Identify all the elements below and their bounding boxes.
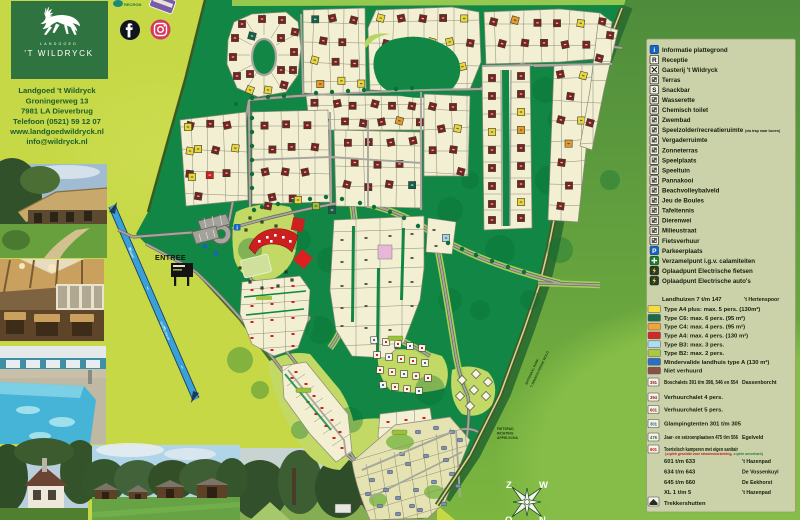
svg-text:Vergaderruimte: Vergaderruimte (662, 137, 708, 144)
svg-text:Type B2: max. 2 pers.: Type B2: max. 2 pers. (664, 351, 724, 357)
svg-text:Niet verhuurd: Niet verhuurd (664, 369, 703, 375)
svg-text:Snackbar: Snackbar (662, 87, 690, 94)
svg-text:Landhuizen 7 t/m 147: Landhuizen 7 t/m 147 (662, 297, 722, 303)
svg-text:Landgoed 't Wildryck: Landgoed 't Wildryck (18, 86, 96, 95)
svg-text:Telefoon (0521) 59 12 07: Telefoon (0521) 59 12 07 (13, 117, 101, 126)
svg-text:Wasserette: Wasserette (662, 97, 695, 104)
svg-text:'t Hazenpad: 't Hazenpad (742, 490, 771, 496)
svg-text:Type C6: max. 6 pers. (95 m²): Type C6: max. 6 pers. (95 m²) (664, 315, 745, 322)
svg-text:Informatie plattegrond: Informatie plattegrond (662, 47, 728, 54)
svg-text:Dierenwei: Dierenwei (662, 218, 692, 225)
svg-text:Beachvolleybalveld: Beachvolleybalveld (662, 188, 720, 195)
svg-text:Chemisch toilet: Chemisch toilet (662, 107, 708, 114)
svg-text:Verhuurchalet 5 pers.: Verhuurchalet 5 pers. (664, 408, 723, 414)
svg-text:W: W (539, 480, 548, 491)
svg-text:O: O (505, 515, 512, 520)
svg-text:De Vossenkuyl: De Vossenkuyl (742, 470, 779, 476)
svg-text:RICHTING: RICHTING (497, 432, 514, 436)
svg-text:7981 LA Dieverbrug: 7981 LA Dieverbrug (21, 107, 93, 116)
svg-text:Milieustraat: Milieustraat (662, 228, 696, 235)
svg-text:De Eekhorst: De Eekhorst (742, 480, 773, 486)
svg-text:'t Hertenspoor: 't Hertenspoor (744, 297, 779, 303)
svg-text:P: P (652, 248, 657, 255)
svg-text:Speeltuin: Speeltuin (662, 167, 690, 174)
svg-text:634 t/m 643: 634 t/m 643 (664, 470, 696, 476)
svg-text:FIETSPAD: FIETSPAD (497, 427, 514, 431)
svg-text:Pannakooi: Pannakooi (662, 177, 694, 184)
svg-text:Speelplaats: Speelplaats (662, 157, 697, 164)
svg-text:601: 601 (650, 447, 658, 452)
svg-text:Tafeltennis: Tafeltennis (662, 208, 695, 215)
svg-text:391: 391 (650, 380, 658, 385)
svg-text:i: i (653, 47, 655, 54)
svg-text:Verzamelpunt i.g.v. calamiteit: Verzamelpunt i.g.v. calamiteiten (662, 258, 755, 265)
svg-text:Jaar- en seizoenplaatsen 475 t: Jaar- en seizoenplaatsen 475 t/m 556 (664, 435, 739, 441)
svg-text:Groningerweg 13: Groningerweg 13 (26, 97, 89, 106)
svg-text:Zonneterras: Zonneterras (662, 147, 698, 154)
svg-text:Dassenborcht: Dassenborcht (742, 380, 777, 386)
svg-text:Oplaadpunt Electrische auto's: Oplaadpunt Electrische auto's (662, 278, 751, 285)
svg-text:301: 301 (650, 421, 658, 426)
svg-text:RECRON: RECRON (124, 2, 141, 7)
svg-text:LANDGOED: LANDGOED (40, 42, 78, 46)
svg-text:XL 1 t/m 5: XL 1 t/m 5 (664, 490, 692, 496)
svg-text:645 t/m 660: 645 t/m 660 (664, 480, 695, 486)
svg-text:Type A4 plus: max. 5 pers. (13: Type A4 plus: max. 5 pers. (130m²) (664, 306, 760, 313)
svg-text:Terras: Terras (662, 77, 681, 84)
svg-text:Verhuurchalet 4 pers.: Verhuurchalet 4 pers. (664, 395, 723, 401)
svg-text:Z: Z (506, 480, 512, 491)
svg-text:Glampingtenten 301 t/m 305: Glampingtenten 301 t/m 305 (664, 422, 742, 428)
svg-text:Oplaadpunt Electrische fietsen: Oplaadpunt Electrische fietsen (662, 268, 753, 275)
svg-text:Type B3: max. 3 pers.: Type B3: max. 3 pers. (664, 342, 724, 348)
svg-text:Gasterij 't Wildryck: Gasterij 't Wildryck (662, 67, 718, 74)
svg-text:Trekkershutten: Trekkershutten (664, 501, 706, 507)
svg-text:www.landgoedwildryck.nl: www.landgoedwildryck.nl (9, 127, 104, 136)
svg-text:Receptie: Receptie (662, 57, 688, 64)
svg-text:(●=plek geschikt voor stroomvo: (●=plek geschikt voor stroomvoorziening,… (665, 452, 763, 456)
svg-text:ENTREE: ENTREE (155, 253, 186, 262)
svg-text:Fietsverhuur: Fietsverhuur (662, 238, 700, 245)
svg-text:Type C4: max. 4 pers. (95 m²): Type C4: max. 4 pers. (95 m²) (664, 324, 745, 331)
svg-text:476: 476 (650, 435, 658, 440)
svg-text:Parkeerplaats: Parkeerplaats (662, 248, 703, 255)
svg-text:Mindervalide landhuis type A (: Mindervalide landhuis type A (130 m²) (664, 359, 769, 366)
svg-text:Jeu de Boules: Jeu de Boules (662, 198, 705, 205)
svg-text:APPELSCHA: APPELSCHA (497, 436, 518, 440)
svg-text:601 t/m 633: 601 t/m 633 (664, 459, 696, 465)
svg-text:S: S (652, 87, 657, 94)
svg-text:N: N (539, 515, 546, 520)
svg-text:601: 601 (650, 407, 658, 412)
svg-text:Boschalets 391 t/m 398, 546 en: Boschalets 391 t/m 398, 546 en 554 (664, 380, 739, 386)
svg-text:394: 394 (650, 395, 658, 400)
svg-text:R: R (652, 57, 657, 64)
svg-text:Zwembad: Zwembad (662, 117, 691, 124)
svg-text:'t Hazenpad: 't Hazenpad (742, 459, 771, 465)
svg-text:info@wildryck.nl: info@wildryck.nl (26, 137, 87, 146)
svg-text:'T WILDRYCK: 'T WILDRYCK (24, 49, 93, 58)
svg-text:Type A4: max. 4 pers. (130 m²): Type A4: max. 4 pers. (130 m²) (664, 333, 748, 340)
svg-text:Egelveld: Egelveld (742, 435, 763, 441)
svg-text:Speelzolder/recreatieruimte (v: Speelzolder/recreatieruimte (via trap na… (662, 127, 781, 134)
